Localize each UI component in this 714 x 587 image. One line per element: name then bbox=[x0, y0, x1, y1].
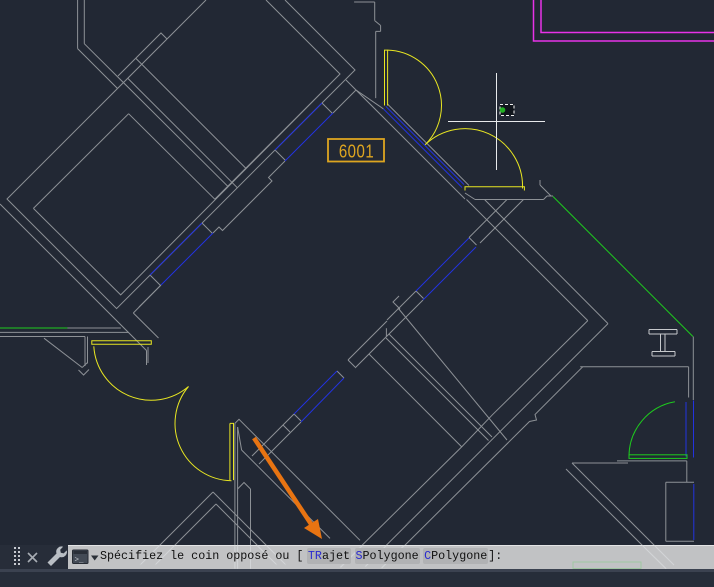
svg-text:6001: 6001 bbox=[339, 141, 374, 162]
